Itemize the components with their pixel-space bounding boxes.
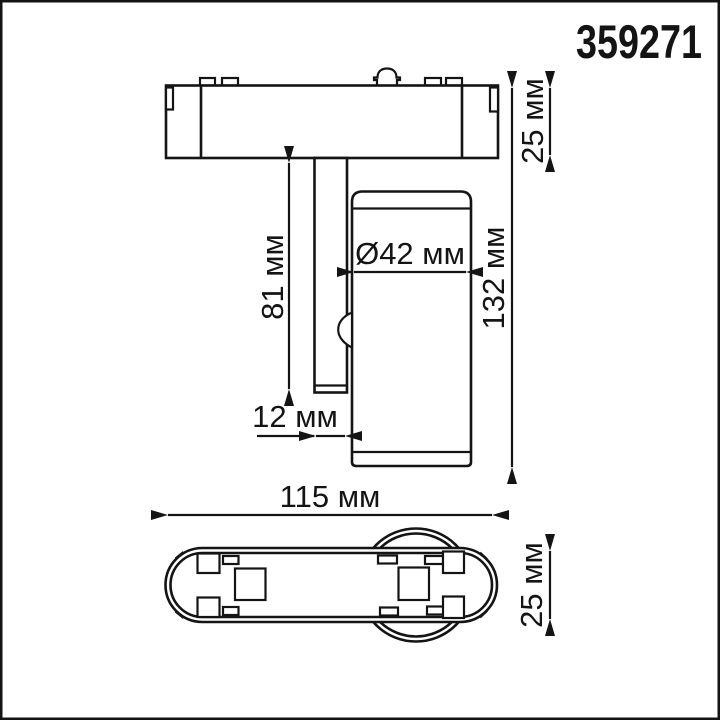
dim-base-width: 25 мм — [514, 542, 550, 628]
release-button-dome — [374, 69, 400, 86]
contact-slot — [378, 556, 397, 564]
dim-track-height-label: 25 мм — [515, 78, 550, 164]
mount-base-top — [166, 548, 498, 622]
bottom-view: 115 мм 25 мм — [166, 479, 551, 642]
dim-stem-width-label: 12 мм — [252, 399, 338, 434]
stem-front — [315, 158, 348, 393]
stem-body — [315, 158, 348, 393]
product-code: 359271 — [576, 15, 702, 68]
drawing-sheet: 359271 25 — [0, 0, 720, 720]
mount-notch-right — [490, 88, 498, 112]
contact-slot — [223, 556, 239, 564]
contact-slot — [427, 607, 444, 615]
magnet-pad — [198, 598, 220, 618]
contact-slot — [223, 607, 239, 615]
mount-notch-left — [166, 88, 173, 110]
center-magnet-right — [399, 568, 430, 601]
magnet-pad — [198, 554, 220, 574]
dim-base-length: 115 мм — [168, 479, 492, 515]
dim-total-height-label: 132 мм — [476, 227, 511, 330]
dim-head-diameter-label: Ø42 мм — [355, 236, 465, 271]
dim-head-diameter: Ø42 мм — [354, 236, 466, 272]
contact-slot — [425, 556, 443, 564]
front-view: 25 мм 81 мм Ø42 мм 132 мм 12 мм — [166, 69, 550, 468]
mount-body — [166, 86, 498, 159]
dim-stem-length-label: 81 мм — [255, 234, 290, 320]
dim-base-width-label: 25 мм — [514, 542, 549, 628]
dim-track-height: 25 мм — [515, 78, 550, 164]
technical-drawing: 359271 25 — [0, 0, 720, 720]
dim-base-length-label: 115 мм — [280, 479, 381, 514]
dim-stem-width: 12 мм — [252, 399, 345, 436]
lamp-head-front — [338, 192, 471, 467]
contact-slot — [380, 608, 398, 616]
magnet-pad — [443, 552, 464, 574]
track-mount-front — [166, 69, 498, 159]
lamp-head-body — [352, 192, 471, 467]
magnet-pad — [443, 597, 464, 619]
center-magnet-left — [235, 569, 266, 601]
dim-stem-length: 81 мм — [255, 163, 290, 389]
